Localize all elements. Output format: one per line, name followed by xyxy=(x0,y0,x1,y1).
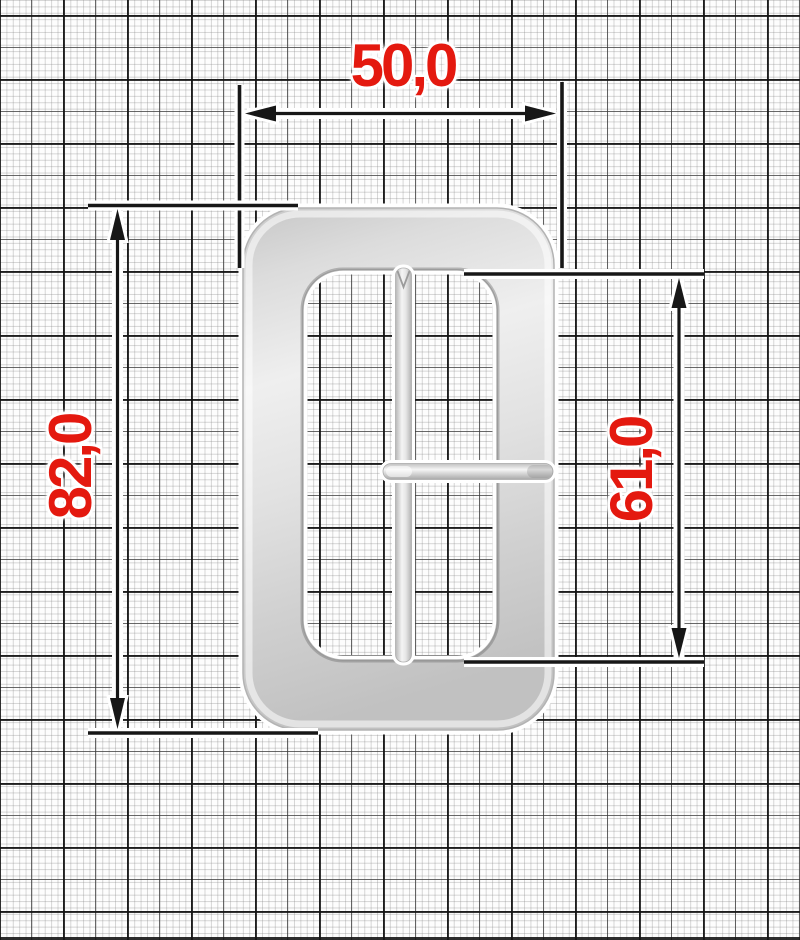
drawing-canvas: 50,0 82,0 61,0 xyxy=(0,0,800,940)
dimension-annotations xyxy=(0,0,800,940)
dimension-height-label: 82,0 xyxy=(43,387,99,547)
dimension-width-label: 50,0 xyxy=(293,38,513,94)
dimension-inner-height xyxy=(464,274,704,662)
dimension-inner-height-label: 61,0 xyxy=(604,390,660,550)
dimension-width xyxy=(240,82,563,268)
dimension-height xyxy=(88,206,318,734)
